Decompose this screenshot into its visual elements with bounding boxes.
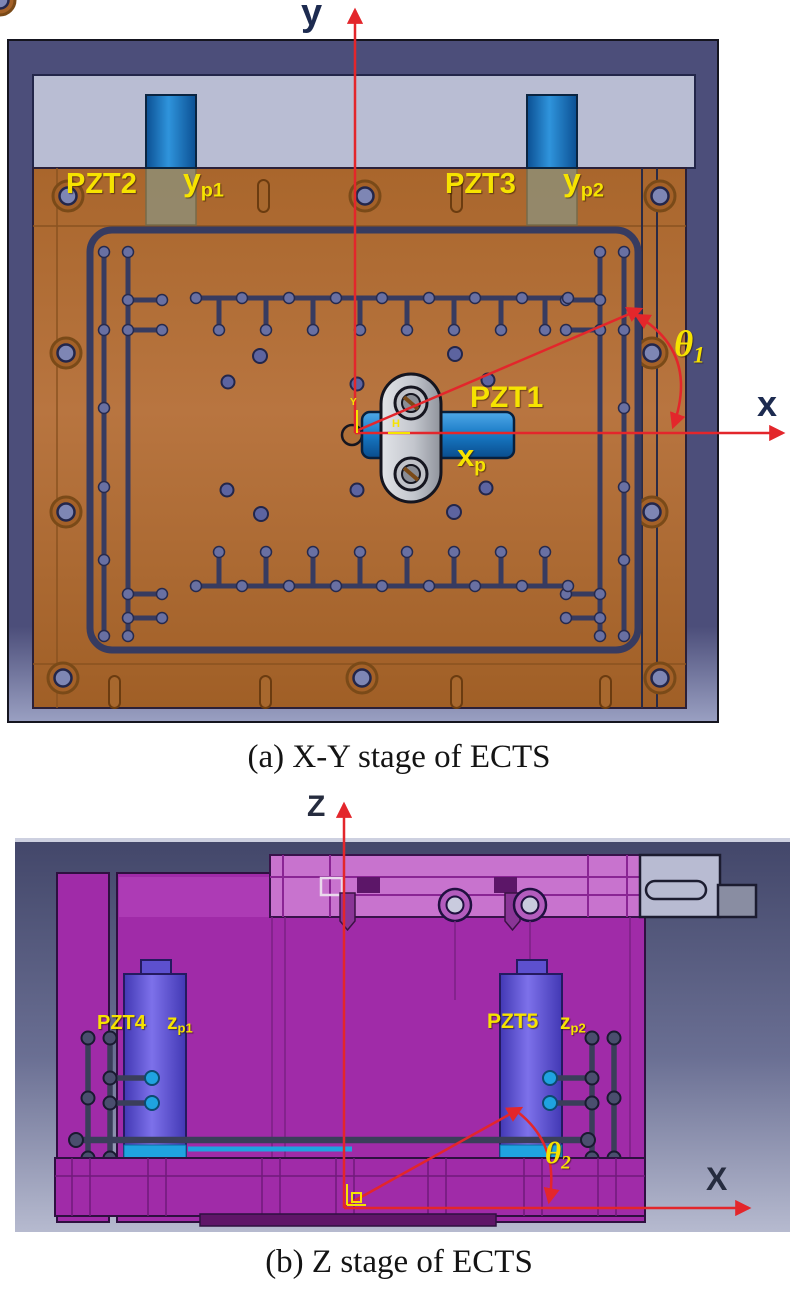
caption-figure-a: (a) X-Y stage of ECTS [0, 739, 798, 775]
axis-label-x: x [757, 386, 777, 422]
tool-tab [718, 885, 756, 917]
label-pzt2: PZT2 [66, 170, 137, 199]
pzt5-actuator [500, 960, 562, 1158]
figure-canvas: y x PZT2 yp1 PZT3 yp2 PZT1 xp θ1 Y H (a)… [0, 0, 798, 1290]
xy-stage-render [0, 0, 783, 722]
label-theta2: θ2 [545, 1137, 571, 1173]
caption-figure-b: (b) Z stage of ECTS [0, 1244, 798, 1280]
label-zp2: zp2 [560, 1012, 586, 1035]
pzt3-actuator [527, 95, 577, 168]
label-xp: xp [457, 440, 486, 476]
origin-mark-h: H [392, 419, 400, 430]
label-yp2: yp2 [563, 164, 604, 201]
axis-label-z: Z [307, 792, 325, 822]
axis-label-x2: X [706, 1163, 727, 1195]
bolt-holes [0, 0, 15, 15]
label-zp1: zp1 [167, 1012, 193, 1035]
label-pzt4: PZT4 [97, 1013, 146, 1033]
axis-label-y: y [301, 0, 322, 32]
label-yp1: yp1 [183, 164, 224, 201]
label-theta1: θ1 [674, 326, 705, 367]
origin-mark-y: Y [350, 398, 357, 408]
label-pzt1: PZT1 [470, 383, 543, 413]
mount-bracket [640, 855, 720, 917]
pzt4-actuator [124, 960, 186, 1158]
label-pzt5: PZT5 [487, 1011, 538, 1032]
pzt2-actuator [146, 95, 196, 168]
label-pzt3: PZT3 [445, 170, 516, 199]
